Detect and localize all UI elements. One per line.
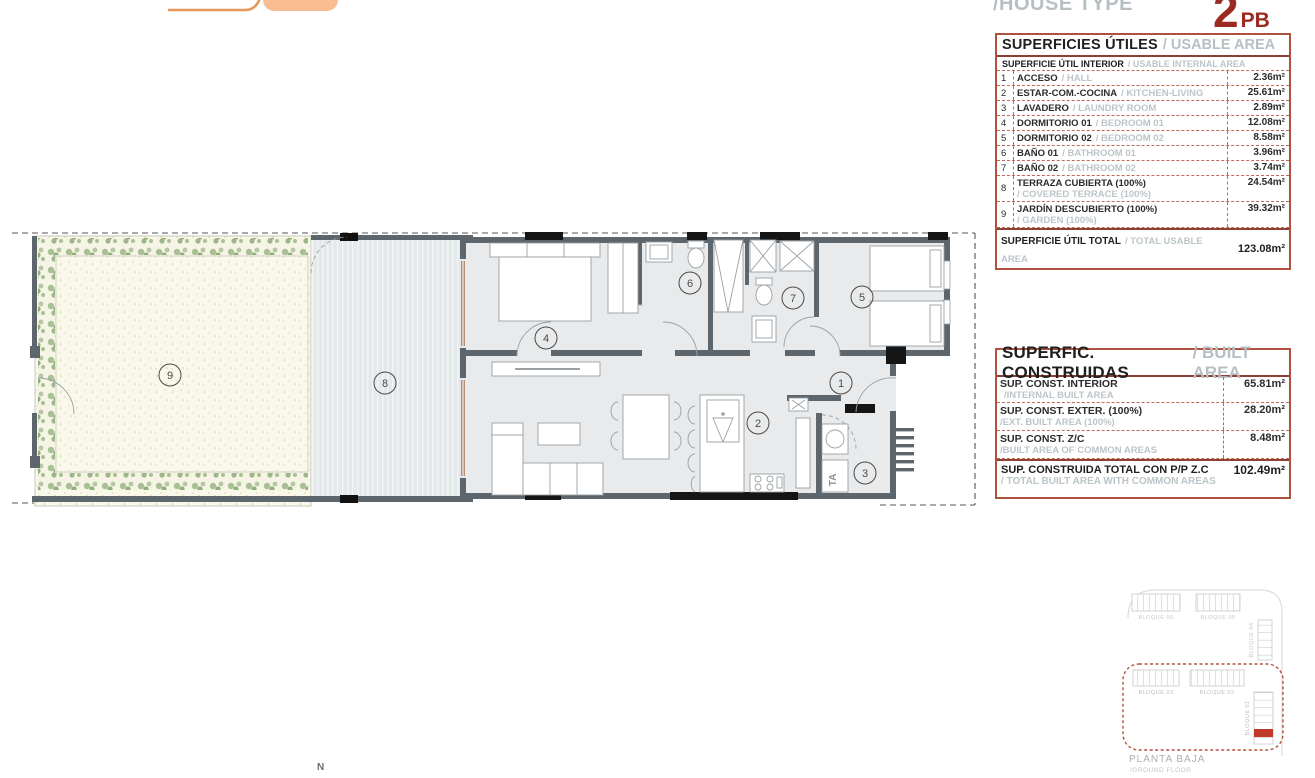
row-en: / BATHROOM 01 <box>1062 148 1136 159</box>
usable-area-table: SUPERFICIES ÚTILES / USABLE AREA SUPERFI… <box>995 33 1291 270</box>
row-num: 3 <box>997 101 1014 115</box>
total-value: 102.49m² <box>1223 463 1289 477</box>
dining-table <box>623 395 669 459</box>
row-name: TERRAZA CUBIERTA (100%)/ COVERED TERRACE… <box>1014 176 1227 201</box>
table-row: 8 TERRAZA CUBIERTA (100%)/ COVERED TERRA… <box>997 176 1289 202</box>
block-02: BLOQUE 02 <box>1190 670 1244 696</box>
row-value: 39.32m² <box>1227 202 1289 227</box>
row-name: BAÑO 01/ BATHROOM 01 <box>1014 146 1227 160</box>
row-es: SUP. CONST. INTERIOR <box>1000 378 1118 390</box>
stove <box>750 474 784 492</box>
table-row: 9 JARDÍN DESCUBIERTO (100%)/ GARDEN (100… <box>997 202 1289 228</box>
svg-text:BLOQUE 03: BLOQUE 03 <box>1138 690 1173 696</box>
wall-black-segment <box>340 495 358 503</box>
kitchen-island <box>700 395 744 492</box>
total-value: 123.08m² <box>1223 243 1289 255</box>
total-es: SUPERFICIE ÚTIL TOTAL <box>1001 236 1121 247</box>
table-row: 2 ESTAR-COM.-COCINA/ KITCHEN-LIVING 25.6… <box>997 86 1289 101</box>
ground-floor-label-en: /GROUND FLOOR <box>1130 767 1191 774</box>
plant-border-top <box>38 238 308 255</box>
row-name: ACCESO/ HALL <box>1014 71 1227 85</box>
row-en: / LAUNDRY ROOM <box>1073 103 1156 114</box>
shower-tray <box>750 240 776 272</box>
type-number: 2 <box>1213 0 1239 37</box>
row-num: 6 <box>997 146 1014 160</box>
table-row: 4 DORMITORIO 01/ BEDROOM 01 12.08m² <box>997 116 1289 131</box>
row-num: 1 <box>997 71 1014 85</box>
row-es: ACCESO <box>1017 73 1058 84</box>
row-value: 3.96m² <box>1227 146 1289 160</box>
block-03: BLOQUE 03 <box>1133 670 1179 696</box>
row-en: / BEDROOM 02 <box>1096 133 1164 144</box>
row-es: LAVADERO <box>1017 103 1069 114</box>
washer-ta-label: TA <box>828 474 839 487</box>
north-arrow-icon: N <box>317 762 324 773</box>
row-en: / BEDROOM 01 <box>1096 118 1164 129</box>
floor-plan: TA 1 2 3 4 5 6 7 8 9 <box>10 228 980 520</box>
row-num: 5 <box>997 131 1014 145</box>
row-es: SUP. CONST. Z/C <box>1000 433 1084 445</box>
table-row: SUP. CONST. Z/C/BUILT AREA OF COMMON ARE… <box>997 431 1289 459</box>
row-value: 12.08m² <box>1227 116 1289 130</box>
svg-text:4: 4 <box>543 333 549 345</box>
row-es: BAÑO 02 <box>1017 163 1058 174</box>
svg-text:1: 1 <box>838 378 844 390</box>
row-value: 25.61m² <box>1227 86 1289 100</box>
row-en: / KITCHEN-LIVING <box>1121 88 1203 99</box>
row-name: JARDÍN DESCUBIERTO (100%)/ GARDEN (100%) <box>1014 202 1227 227</box>
usable-total-row: SUPERFICIE ÚTIL TOTAL/ TOTAL USABLE AREA… <box>997 228 1289 268</box>
table-row: 7 BAÑO 02/ BATHROOM 02 3.74m² <box>997 161 1289 176</box>
row-value: 28.20m² <box>1223 403 1289 430</box>
svg-text:7: 7 <box>790 293 796 305</box>
logo-mark <box>263 0 338 11</box>
house-type-label: /HOUSE TYPE <box>993 0 1133 16</box>
washer <box>822 424 848 454</box>
row-value: 2.89m² <box>1227 101 1289 115</box>
svg-text:6: 6 <box>687 278 693 290</box>
table-row: SUP. CONST. INTERIOR/INTERNAL BUILT AREA… <box>997 377 1289 403</box>
row-en: / GARDEN (100%) <box>1017 215 1224 226</box>
row-es: ESTAR-COM.-COCINA <box>1017 88 1117 99</box>
row-es: JARDÍN DESCUBIERTO (100%) <box>1017 204 1157 215</box>
row-num: 8 <box>997 176 1014 201</box>
usable-title-es: SUPERFICIES ÚTILES <box>1002 37 1158 53</box>
row-es: BAÑO 01 <box>1017 148 1058 159</box>
row-es: TERRAZA CUBIERTA (100%) <box>1017 178 1146 189</box>
double-bed <box>490 243 600 321</box>
row-en: /EXT. BUILT AREA (100%) <box>1000 417 1220 428</box>
row-en: /BUILT AREA OF COMMON AREAS <box>1000 445 1220 456</box>
built-area-table: SUPERFIC. CONSTRUIDAS / BUILT AREA SUP. … <box>995 348 1291 499</box>
plant-border-left <box>38 238 55 490</box>
usable-sub-es: SUPERFICIE ÚTIL INTERIOR <box>1002 59 1124 69</box>
row-name: DORMITORIO 02/ BEDROOM 02 <box>1014 131 1227 145</box>
svg-text:BLOQUE 05: BLOQUE 05 <box>1200 615 1235 621</box>
sink-appliance <box>789 398 808 411</box>
block-04: BLOQUE 04 <box>1249 620 1272 660</box>
block-06: BLOQUE 06 <box>1132 594 1180 621</box>
block-01: BLOQUE 01 <box>1245 692 1273 744</box>
table-row: 3 LAVADERO/ LAUNDRY ROOM 2.89m² <box>997 101 1289 116</box>
row-num: 9 <box>997 202 1014 227</box>
built-total-row: SUP. CONSTRUIDA TOTAL CON P/P Z.C/ TOTAL… <box>997 459 1289 497</box>
row-value: 8.58m² <box>1227 131 1289 145</box>
table-row: 5 DORMITORIO 02/ BEDROOM 02 8.58m² <box>997 131 1289 146</box>
row-value: 3.74m² <box>1227 161 1289 175</box>
row-es: SUP. CONST. EXTER. (100%) <box>1000 405 1142 417</box>
built-table-title: SUPERFIC. CONSTRUIDAS / BUILT AREA <box>997 350 1289 377</box>
row-en: /INTERNAL BUILT AREA <box>1004 390 1114 401</box>
row-num: 4 <box>997 116 1014 130</box>
row-num: 7 <box>997 161 1014 175</box>
ground-floor-label-es: PLANTA BAJA <box>1129 754 1205 765</box>
terrace-area <box>311 233 473 503</box>
row-name: ESTAR-COM.-COCINA/ KITCHEN-LIVING <box>1014 86 1227 100</box>
total-label: SUPERFICIE ÚTIL TOTAL/ TOTAL USABLE AREA <box>997 230 1223 268</box>
svg-text:8: 8 <box>382 378 388 390</box>
block-05: BLOQUE 05 <box>1196 594 1240 621</box>
row-en: / HALL <box>1062 73 1093 84</box>
svg-text:5: 5 <box>859 292 865 304</box>
usable-table-subheader: SUPERFICIE ÚTIL INTERIOR / USABLE INTERN… <box>997 57 1289 71</box>
row-name: SUP. CONST. Z/C/BUILT AREA OF COMMON ARE… <box>997 431 1223 458</box>
svg-text:2: 2 <box>755 418 761 430</box>
row-name: SUP. CONST. INTERIOR/INTERNAL BUILT AREA <box>997 377 1223 402</box>
svg-text:BLOQUE 06: BLOQUE 06 <box>1138 615 1173 621</box>
plan-sheet-page: /HOUSE TYPE 2PB SUPERFICIES ÚTILES / USA… <box>0 0 1315 778</box>
site-key-plan: BLOQUE 06 BLOQUE 05 BLOQUE 04 BLOQUE 03 … <box>1120 588 1310 778</box>
row-en: / COVERED TERRACE (100%) <box>1017 189 1224 200</box>
row-name: BAÑO 02/ BATHROOM 02 <box>1014 161 1227 175</box>
usable-title-en: / USABLE AREA <box>1163 37 1275 53</box>
row-name: SUP. CONST. EXTER. (100%)/EXT. BUILT ARE… <box>997 403 1223 430</box>
entry-steps <box>896 428 914 471</box>
row-name: DORMITORIO 01/ BEDROOM 01 <box>1014 116 1227 130</box>
row-es: DORMITORIO 02 <box>1017 133 1092 144</box>
highlighted-unit <box>1254 729 1273 737</box>
table-row: 1 ACCESO/ HALL 2.36m² <box>997 71 1289 86</box>
plant-border-bottom <box>38 473 308 490</box>
table-row: SUP. CONST. EXTER. (100%)/EXT. BUILT ARE… <box>997 403 1289 431</box>
svg-text:BLOQUE 02: BLOQUE 02 <box>1199 690 1234 696</box>
brand-logo <box>150 0 350 32</box>
table-row: 6 BAÑO 01/ BATHROOM 01 3.96m² <box>997 146 1289 161</box>
type-suffix: PB <box>1241 9 1270 32</box>
kitchen-counter <box>796 418 810 488</box>
interior-area: TA <box>460 232 950 500</box>
row-value: 24.54m² <box>1227 176 1289 201</box>
row-value: 8.48m² <box>1223 431 1289 458</box>
logo-swoosh <box>168 0 260 10</box>
usable-table-title: SUPERFICIES ÚTILES / USABLE AREA <box>997 35 1289 57</box>
svg-text:3: 3 <box>862 468 868 480</box>
shower-stall <box>714 240 743 312</box>
svg-text:9: 9 <box>167 370 173 382</box>
row-value: 65.81m² <box>1223 377 1289 402</box>
total-en: / TOTAL BUILT AREA WITH COMMON AREAS <box>1001 476 1219 487</box>
row-en: / BATHROOM 02 <box>1062 163 1136 174</box>
row-name: LAVADERO/ LAUNDRY ROOM <box>1014 101 1227 115</box>
svg-text:BLOQUE 01: BLOQUE 01 <box>1245 700 1251 735</box>
total-label: SUP. CONSTRUIDA TOTAL CON P/P Z.C/ TOTAL… <box>997 463 1223 488</box>
row-num: 2 <box>997 86 1014 100</box>
svg-text:BLOQUE 04: BLOQUE 04 <box>1249 622 1255 657</box>
usable-sub-en: / USABLE INTERNAL AREA <box>1128 59 1246 69</box>
total-es: SUP. CONSTRUIDA TOTAL CON P/P Z.C <box>1001 464 1219 476</box>
coffee-table <box>538 423 580 445</box>
row-value: 2.36m² <box>1227 71 1289 85</box>
row-es: DORMITORIO 01 <box>1017 118 1092 129</box>
